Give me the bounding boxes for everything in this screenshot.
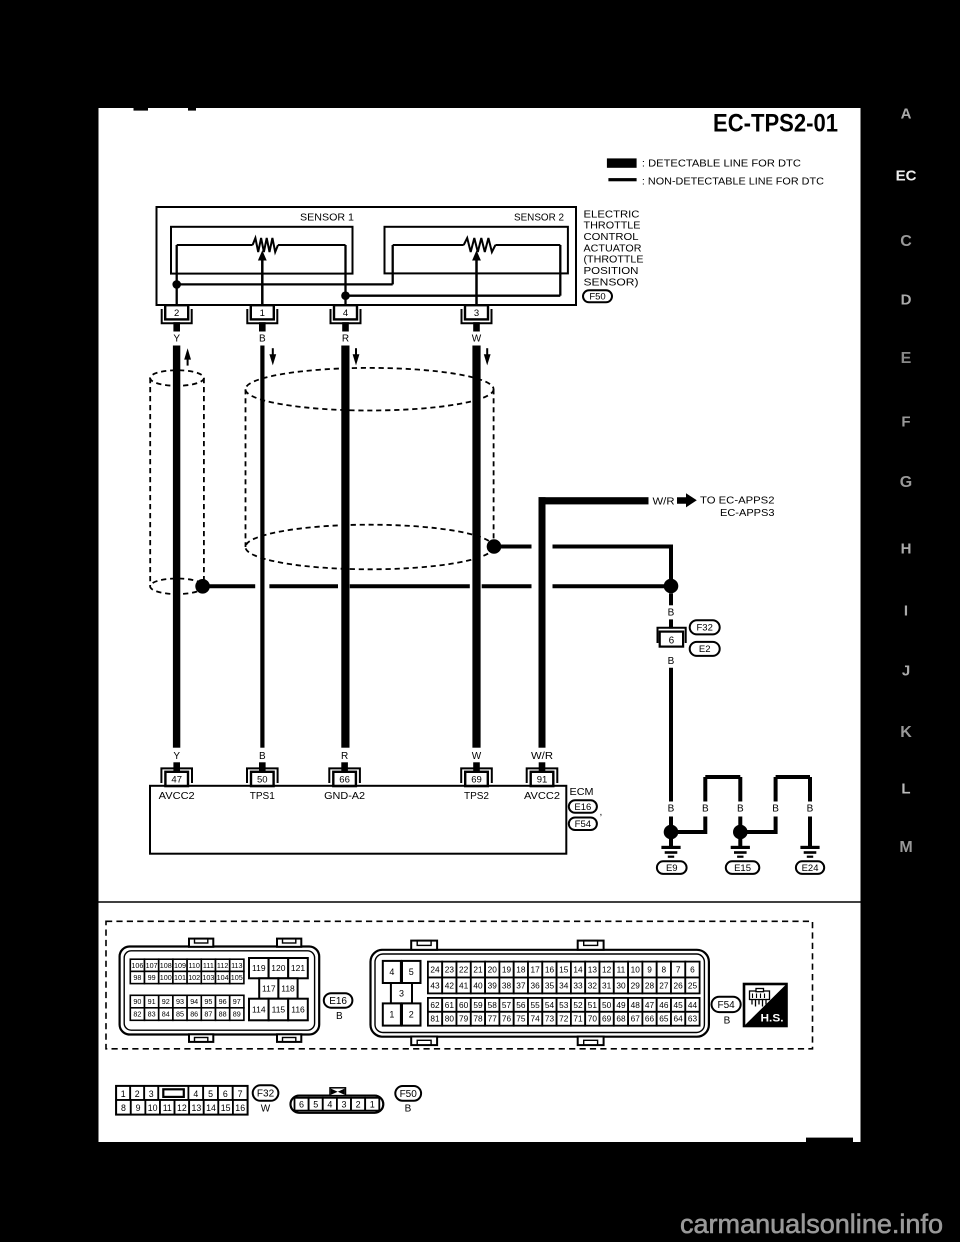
svg-text:E16: E16: [329, 996, 347, 1007]
svg-text:9: 9: [136, 1103, 141, 1113]
svg-text:25: 25: [688, 980, 698, 990]
svg-text:96: 96: [219, 997, 227, 1006]
svg-text:33: 33: [573, 980, 583, 990]
svg-text:F54: F54: [717, 1000, 735, 1011]
svg-text:H.S.: H.S.: [761, 1013, 784, 1025]
svg-text:ELECTRIC: ELECTRIC: [584, 208, 640, 220]
svg-text:ACTUATOR: ACTUATOR: [584, 242, 642, 254]
svg-text:TPS1: TPS1: [250, 791, 275, 802]
svg-text:CONTROL: CONTROL: [584, 231, 639, 243]
svg-text:4: 4: [389, 967, 394, 977]
svg-text:120: 120: [271, 963, 285, 973]
svg-text:B: B: [772, 803, 779, 814]
svg-text:F50: F50: [400, 1089, 418, 1100]
svg-text:115: 115: [272, 1005, 286, 1015]
svg-text:6: 6: [223, 1089, 228, 1099]
svg-text:58: 58: [488, 1000, 498, 1010]
svg-text:W: W: [472, 334, 482, 345]
svg-text:27: 27: [659, 980, 669, 990]
svg-text:60: 60: [459, 1000, 469, 1010]
svg-text:118: 118: [281, 984, 295, 994]
svg-text:61: 61: [445, 1000, 455, 1010]
svg-text:54: 54: [545, 1000, 555, 1010]
svg-text:29: 29: [631, 980, 641, 990]
svg-text:1: 1: [370, 1099, 375, 1109]
svg-text:91: 91: [537, 774, 548, 785]
svg-text:76: 76: [502, 1014, 512, 1024]
svg-text:94: 94: [190, 997, 198, 1006]
svg-text:68: 68: [616, 1014, 626, 1024]
svg-text:W: W: [261, 1104, 271, 1115]
svg-text:F32: F32: [697, 623, 713, 634]
svg-text:95: 95: [204, 997, 212, 1006]
svg-text:3: 3: [399, 988, 404, 998]
svg-text:111: 111: [203, 961, 214, 970]
svg-text:66: 66: [339, 774, 350, 785]
svg-text:AVCC2: AVCC2: [159, 791, 195, 802]
svg-text:47: 47: [645, 1000, 655, 1010]
svg-text:88: 88: [219, 1010, 227, 1019]
svg-text:2: 2: [356, 1099, 361, 1109]
svg-text:43: 43: [430, 980, 440, 990]
svg-text:101: 101: [174, 973, 186, 982]
svg-text:4: 4: [193, 1089, 198, 1099]
svg-text:Y: Y: [173, 751, 180, 762]
svg-text:12: 12: [177, 1103, 187, 1113]
svg-text:53: 53: [559, 1000, 569, 1010]
svg-text:37: 37: [516, 980, 526, 990]
svg-text:78: 78: [473, 1014, 483, 1024]
svg-text:1: 1: [121, 1089, 126, 1099]
svg-text:B: B: [737, 803, 744, 814]
svg-text:10: 10: [148, 1103, 158, 1113]
svg-text:5: 5: [313, 1099, 318, 1109]
svg-text:45: 45: [674, 1000, 684, 1010]
svg-text:EC-APPS3: EC-APPS3: [720, 507, 775, 519]
svg-text:F50: F50: [589, 292, 605, 303]
svg-text:92: 92: [162, 997, 170, 1006]
svg-text:86: 86: [190, 1010, 198, 1019]
svg-text:55: 55: [531, 1000, 541, 1010]
svg-text:52: 52: [573, 1000, 583, 1010]
svg-text:97: 97: [233, 997, 241, 1006]
svg-text:3: 3: [474, 308, 479, 319]
svg-text:TO EC-APPS2: TO EC-APPS2: [700, 494, 775, 506]
svg-text:F: F: [901, 413, 910, 430]
svg-text:B: B: [668, 803, 675, 814]
svg-text:100: 100: [160, 973, 172, 982]
svg-text:119: 119: [252, 963, 266, 973]
svg-text:103: 103: [202, 973, 214, 982]
svg-text:AVCC2: AVCC2: [524, 791, 560, 802]
svg-text:B: B: [668, 656, 675, 667]
svg-text:73: 73: [545, 1014, 555, 1024]
svg-text:15: 15: [559, 965, 569, 975]
svg-text:56: 56: [516, 1000, 526, 1010]
svg-text:J: J: [902, 662, 910, 679]
svg-text:87: 87: [204, 1010, 212, 1019]
svg-text:104: 104: [217, 973, 229, 982]
svg-text:1: 1: [260, 308, 265, 319]
svg-text:50: 50: [602, 1000, 612, 1010]
svg-text:3: 3: [341, 1099, 346, 1109]
svg-text:82: 82: [133, 1010, 141, 1019]
svg-text:14: 14: [573, 965, 583, 975]
svg-text:57: 57: [502, 1000, 512, 1010]
svg-text:69: 69: [471, 774, 482, 785]
svg-text:16: 16: [235, 1103, 245, 1113]
svg-text:102: 102: [188, 973, 200, 982]
svg-text:62: 62: [430, 1000, 440, 1010]
svg-text:20: 20: [488, 965, 498, 975]
svg-text:35: 35: [545, 980, 555, 990]
svg-text:30: 30: [616, 980, 626, 990]
svg-text:3: 3: [149, 1089, 154, 1099]
svg-text:64: 64: [674, 1014, 684, 1024]
svg-text:67: 67: [631, 1014, 641, 1024]
svg-text:6: 6: [669, 635, 675, 646]
svg-text:: NON-DETECTABLE LINE FOR DTC: : NON-DETECTABLE LINE FOR DTC: [642, 175, 824, 187]
svg-text:E16: E16: [574, 802, 591, 813]
svg-text:50: 50: [257, 774, 268, 785]
svg-text:C: C: [900, 233, 912, 250]
svg-text:21: 21: [473, 965, 483, 975]
svg-text:65: 65: [659, 1014, 669, 1024]
svg-text:105: 105: [231, 973, 243, 982]
svg-text:: DETECTABLE LINE FOR DTC: : DETECTABLE LINE FOR DTC: [642, 158, 801, 170]
svg-text:98: 98: [133, 973, 141, 982]
svg-text:19: 19: [502, 965, 512, 975]
svg-text:117: 117: [262, 984, 276, 994]
svg-text:14: 14: [206, 1103, 216, 1113]
svg-text:7: 7: [676, 965, 681, 975]
svg-text:12: 12: [602, 965, 612, 975]
svg-text:112: 112: [217, 961, 228, 970]
svg-text:66: 66: [645, 1014, 655, 1024]
svg-text:69: 69: [602, 1014, 612, 1024]
svg-text:38: 38: [502, 980, 512, 990]
svg-text:SENSOR): SENSOR): [584, 276, 639, 288]
svg-text:40: 40: [473, 980, 483, 990]
svg-text:4: 4: [343, 308, 348, 319]
svg-text:90: 90: [133, 997, 141, 1006]
svg-text:F54: F54: [575, 819, 591, 830]
svg-text:81: 81: [430, 1014, 440, 1024]
svg-text:89: 89: [233, 1010, 241, 1019]
svg-text:B: B: [405, 1104, 412, 1115]
svg-text:SENSOR 2: SENSOR 2: [514, 212, 564, 223]
svg-text:71: 71: [573, 1014, 583, 1024]
svg-text:E15: E15: [734, 863, 751, 874]
svg-text:B: B: [259, 334, 266, 345]
svg-text:7: 7: [238, 1089, 243, 1099]
svg-text:B: B: [336, 1011, 343, 1022]
svg-text:114: 114: [252, 1005, 266, 1015]
svg-text:L: L: [901, 780, 910, 797]
svg-text:17: 17: [531, 965, 541, 975]
svg-text:41: 41: [459, 980, 469, 990]
svg-text:SENSOR 1: SENSOR 1: [300, 212, 354, 223]
svg-text:E24: E24: [802, 863, 819, 874]
svg-text:,: ,: [600, 807, 603, 818]
svg-text:13: 13: [192, 1103, 202, 1113]
svg-text:24: 24: [430, 965, 440, 975]
svg-text:26: 26: [674, 980, 684, 990]
svg-text:39: 39: [488, 980, 498, 990]
svg-text:15: 15: [221, 1103, 231, 1113]
svg-text:1: 1: [389, 1010, 394, 1020]
svg-text:116: 116: [291, 1005, 305, 1015]
svg-text:75: 75: [516, 1014, 526, 1024]
svg-text:13: 13: [588, 965, 598, 975]
svg-text:44: 44: [688, 1000, 698, 1010]
svg-text:36: 36: [531, 980, 541, 990]
svg-text:M: M: [899, 839, 912, 856]
svg-text:W: W: [472, 751, 482, 762]
svg-text:31: 31: [602, 980, 612, 990]
svg-text:H: H: [901, 540, 912, 557]
svg-text:carmanualsonline.info: carmanualsonline.info: [680, 1209, 943, 1239]
svg-text:Y: Y: [173, 334, 180, 345]
svg-text:32: 32: [588, 980, 598, 990]
svg-text:5: 5: [409, 967, 414, 977]
svg-text:49: 49: [616, 1000, 626, 1010]
svg-text:B: B: [807, 803, 814, 814]
svg-text:11: 11: [163, 1103, 172, 1113]
svg-text:18: 18: [516, 965, 526, 975]
svg-text:121: 121: [291, 963, 305, 973]
svg-text:28: 28: [645, 980, 655, 990]
svg-text:D: D: [901, 291, 912, 308]
svg-text:G: G: [900, 474, 912, 491]
svg-text:POSITION: POSITION: [584, 265, 639, 277]
svg-text:TPS2: TPS2: [464, 791, 489, 802]
svg-text:91: 91: [148, 997, 156, 1006]
svg-text:GND-A2: GND-A2: [324, 791, 365, 802]
svg-text:79: 79: [459, 1014, 469, 1024]
svg-text:59: 59: [473, 1000, 483, 1010]
svg-text:B: B: [724, 1016, 731, 1027]
svg-text:110: 110: [188, 961, 199, 970]
svg-text:2: 2: [135, 1089, 140, 1099]
svg-text:108: 108: [160, 961, 172, 970]
svg-text:2: 2: [409, 1010, 414, 1020]
svg-text:EC-TPS2-01: EC-TPS2-01: [713, 110, 838, 138]
svg-text:106: 106: [131, 961, 143, 970]
svg-text:16: 16: [545, 965, 555, 975]
svg-text:84: 84: [162, 1010, 170, 1019]
svg-text:34: 34: [559, 980, 569, 990]
svg-text:9: 9: [647, 965, 652, 975]
svg-text:EC: EC: [896, 167, 917, 184]
svg-text:46: 46: [659, 1000, 669, 1010]
svg-text:42: 42: [445, 980, 455, 990]
svg-text:23: 23: [445, 965, 455, 975]
svg-text:K: K: [900, 724, 912, 741]
svg-text:R: R: [341, 751, 348, 762]
svg-text:B: B: [702, 803, 709, 814]
svg-text:99: 99: [148, 973, 156, 982]
svg-text:47: 47: [171, 774, 182, 785]
svg-text:80: 80: [445, 1014, 455, 1024]
svg-text:W/R: W/R: [653, 497, 675, 508]
svg-text:B: B: [259, 751, 266, 762]
svg-text:93: 93: [176, 997, 184, 1006]
svg-text:ECM: ECM: [570, 786, 594, 798]
svg-text:6: 6: [299, 1099, 304, 1109]
svg-text:51: 51: [588, 1000, 598, 1010]
svg-text:4: 4: [327, 1099, 332, 1109]
svg-text:8: 8: [662, 965, 667, 975]
svg-text:109: 109: [174, 961, 186, 970]
svg-text:11: 11: [617, 965, 626, 975]
svg-text:E9: E9: [666, 863, 678, 874]
svg-text:113: 113: [231, 961, 242, 970]
svg-text:83: 83: [148, 1010, 156, 1019]
svg-text:B: B: [668, 607, 675, 618]
svg-text:85: 85: [176, 1010, 184, 1019]
svg-text:77: 77: [488, 1014, 498, 1024]
svg-text:6: 6: [690, 965, 695, 975]
svg-text:5: 5: [208, 1089, 213, 1099]
svg-text:THROTTLE: THROTTLE: [584, 220, 641, 232]
svg-text:E2: E2: [699, 644, 711, 655]
svg-text:70: 70: [588, 1014, 598, 1024]
svg-text:63: 63: [688, 1014, 698, 1024]
svg-text:F32: F32: [257, 1089, 275, 1100]
svg-text:I: I: [904, 602, 908, 619]
svg-text:W/R: W/R: [531, 751, 553, 762]
svg-text:A: A: [901, 105, 912, 122]
svg-text:E: E: [901, 350, 912, 367]
svg-text:(THROTTLE: (THROTTLE: [584, 254, 644, 266]
svg-text:72: 72: [559, 1014, 569, 1024]
svg-text:74: 74: [531, 1014, 541, 1024]
svg-text:107: 107: [146, 961, 158, 970]
svg-text:R: R: [342, 334, 349, 345]
svg-text:22: 22: [459, 965, 469, 975]
svg-text:48: 48: [631, 1000, 641, 1010]
svg-text:2: 2: [174, 308, 179, 319]
svg-text:8: 8: [121, 1103, 126, 1113]
svg-text:10: 10: [631, 965, 641, 975]
